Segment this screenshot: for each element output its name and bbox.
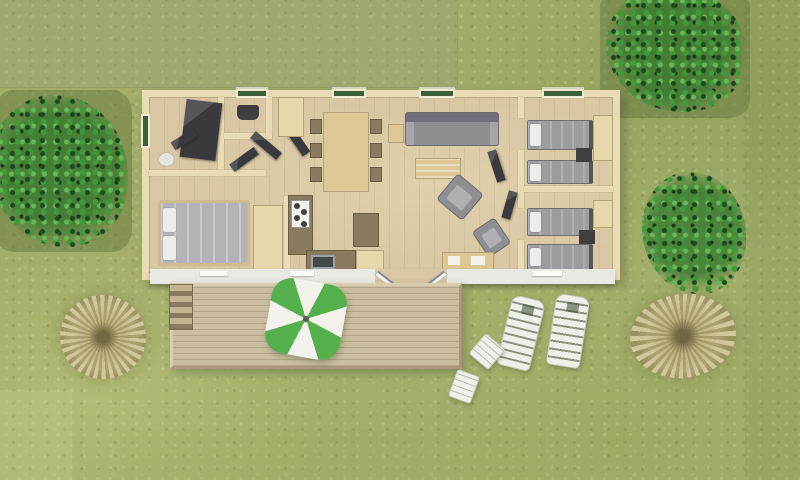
armchair-seat <box>446 185 472 211</box>
window-wc <box>236 89 268 98</box>
bedroom-wardrobe <box>593 200 613 228</box>
shower-cabin <box>180 99 223 161</box>
dining-chair <box>370 119 382 134</box>
bathroom-sink <box>159 153 174 166</box>
sideboard-top-item <box>448 256 460 265</box>
toilet <box>237 105 259 120</box>
stove <box>291 200 310 228</box>
burner <box>301 221 307 227</box>
pillow <box>530 248 541 266</box>
sofa-side-table <box>388 124 404 143</box>
hall-cupboard <box>278 97 304 137</box>
parasol <box>262 275 350 363</box>
grass-tile-seam-top-left <box>0 0 458 88</box>
tv-panel <box>487 149 505 182</box>
single-bed <box>527 160 593 184</box>
window-living <box>419 89 455 98</box>
grass-tile-seam-bottom-left <box>0 390 72 480</box>
window-bathroom-side <box>141 114 150 148</box>
single-bed <box>527 120 593 150</box>
master-wardrobe <box>253 205 283 271</box>
facade-window-sill <box>200 271 228 276</box>
house-floor-plan <box>142 90 620 280</box>
pillow <box>530 212 541 232</box>
burner <box>294 203 300 209</box>
grass-tile-seam-bottom <box>120 430 540 480</box>
scene <box>0 0 800 480</box>
dining-chair <box>310 167 322 182</box>
single-bed <box>527 244 593 270</box>
dining-table <box>323 112 369 192</box>
facade-window-sill <box>532 271 562 276</box>
nightstand <box>576 148 592 162</box>
wall-between-twin-bedrooms <box>524 186 613 192</box>
wall-wc-right <box>266 97 272 139</box>
kitchen-sink <box>311 255 335 269</box>
armchair <box>436 173 484 221</box>
window-bedroom <box>542 89 584 98</box>
wall-living-bedrooms-divider-a <box>518 97 524 118</box>
pillow <box>163 208 176 232</box>
pillow <box>163 236 176 260</box>
wall-master-bedroom-top <box>149 170 266 176</box>
dining-chair <box>310 119 322 134</box>
bedroom-wardrobe <box>593 115 613 161</box>
burner <box>301 209 307 215</box>
burner <box>294 215 300 221</box>
deck-steps <box>169 284 193 330</box>
hall-door-open-2 <box>229 147 259 172</box>
dining-chair <box>370 167 382 182</box>
wall-living-bedrooms-divider-b <box>518 150 524 208</box>
sofa <box>405 112 499 146</box>
nightstand <box>579 230 595 244</box>
facade-window-sill <box>290 271 314 276</box>
grass-tile-seam-right <box>745 0 800 480</box>
pillow <box>530 124 541 146</box>
kitchen-island <box>353 213 379 247</box>
dining-chair <box>310 143 322 158</box>
parasol-pole <box>303 316 310 323</box>
armchair-seat <box>481 227 502 249</box>
window-dining <box>332 89 366 98</box>
double-bed <box>158 200 250 266</box>
tv-panel <box>501 190 517 219</box>
dining-chair <box>370 143 382 158</box>
pillow <box>530 164 541 181</box>
sideboard-top-item <box>471 256 485 265</box>
